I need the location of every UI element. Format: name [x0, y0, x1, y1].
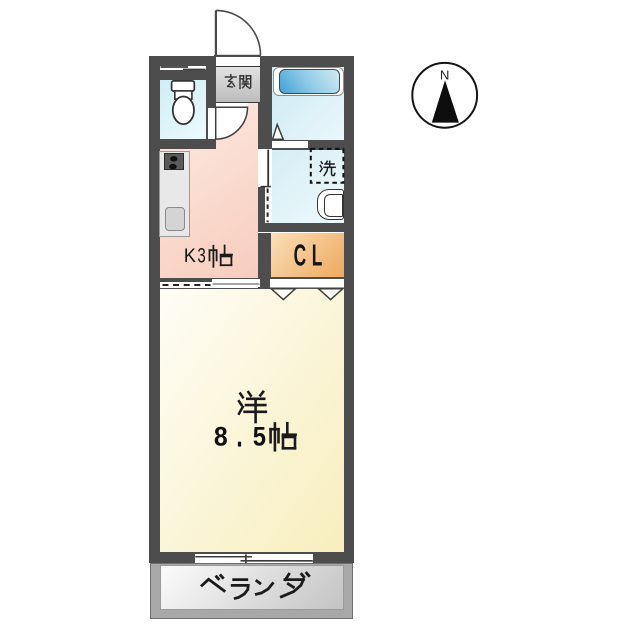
svg-text:8: 8 — [214, 423, 228, 452]
svg-text:K: K — [184, 244, 196, 266]
svg-text:CL: CL — [294, 238, 328, 273]
svg-text:5: 5 — [253, 422, 266, 452]
svg-text:3: 3 — [197, 243, 205, 267]
svg-text:N: N — [440, 67, 450, 82]
